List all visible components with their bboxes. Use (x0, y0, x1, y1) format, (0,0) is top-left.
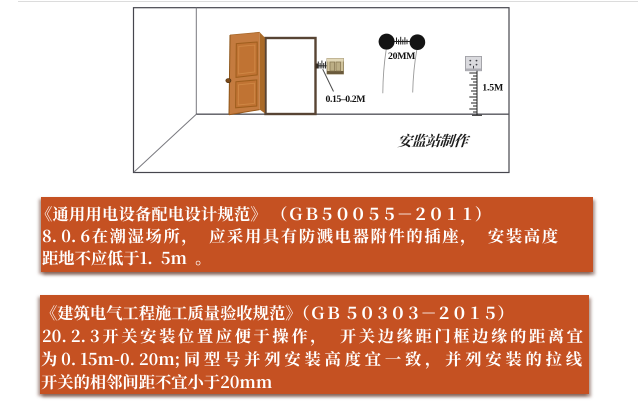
svg-text:0.15–0.2M: 0.15–0.2M (326, 94, 366, 105)
svg-text:20MM: 20MM (388, 51, 415, 62)
svg-text:1.5M: 1.5M (482, 83, 503, 94)
